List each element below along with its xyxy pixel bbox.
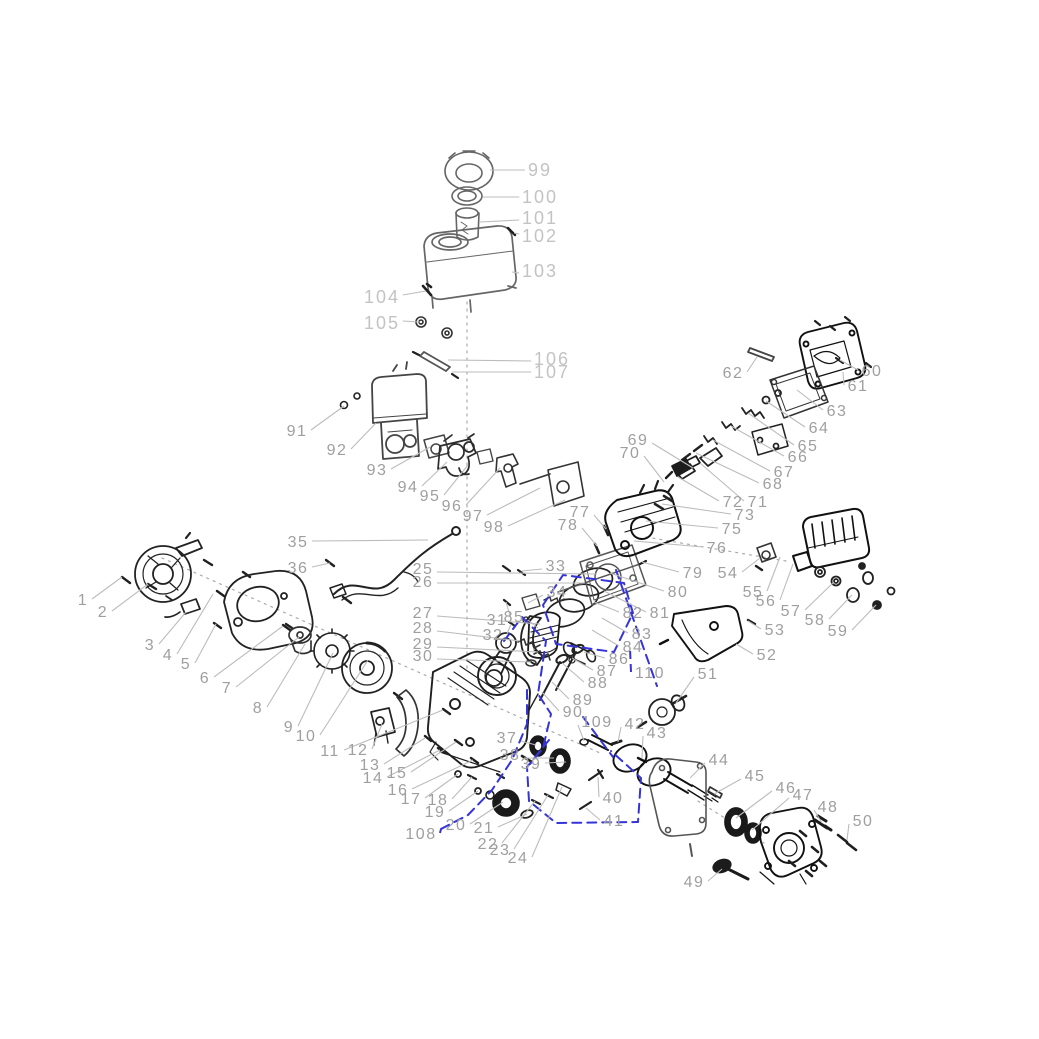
leader-line-103 — [512, 272, 519, 273]
callout-label-3: 3 — [145, 638, 155, 654]
callout-label-33: 33 — [546, 559, 567, 575]
leader-line-72 — [678, 477, 719, 501]
leader-line-43 — [642, 736, 643, 758]
callout-label-11: 11 — [320, 744, 340, 760]
leader-line-70 — [644, 456, 664, 482]
callout-label-96: 96 — [442, 499, 463, 515]
leader-line-4 — [177, 594, 213, 654]
leader-line-76 — [634, 541, 703, 547]
leader-line-35 — [312, 540, 428, 541]
leader-line-104 — [403, 291, 426, 295]
leader-line-33 — [522, 569, 542, 571]
callout-label-20: 20 — [446, 818, 467, 834]
callout-label-17: 17 — [401, 792, 422, 808]
callout-label-43: 43 — [647, 726, 668, 742]
callout-label-40: 40 — [603, 791, 624, 807]
leader-line-46 — [736, 791, 772, 818]
callout-label-95: 95 — [420, 489, 441, 505]
leader-line-52 — [736, 644, 753, 654]
leader-line-34 — [528, 595, 543, 603]
leader-line-87 — [572, 658, 593, 670]
leader-line-75 — [646, 521, 718, 528]
leader-line-47 — [752, 798, 789, 830]
leader-line-97 — [487, 488, 540, 515]
callout-label-102: 102 — [522, 227, 558, 245]
leader-line-13 — [384, 738, 425, 764]
callout-label-45: 45 — [745, 769, 766, 785]
callout-label-1: 1 — [78, 593, 88, 609]
leader-line-42 — [618, 727, 621, 742]
callout-label-110: 110 — [635, 666, 665, 682]
leader-line-88 — [562, 663, 584, 682]
leader-line-49 — [708, 869, 722, 881]
leader-line-60 — [840, 360, 858, 370]
leader-lines-layer — [0, 0, 1039, 1039]
leader-line-29 — [437, 647, 538, 652]
leader-line-89 — [552, 682, 569, 699]
callout-label-80: 80 — [668, 585, 689, 601]
callout-label-94: 94 — [398, 480, 419, 496]
callout-label-49: 49 — [684, 875, 705, 891]
leader-line-66 — [731, 426, 784, 456]
callout-label-81: 81 — [650, 606, 671, 622]
callout-label-41: 41 — [604, 814, 625, 830]
leader-line-55 — [767, 557, 780, 591]
leader-line-106 — [448, 360, 531, 361]
leader-line-94 — [422, 462, 447, 486]
leader-line-45 — [714, 779, 741, 794]
callout-label-5: 5 — [181, 657, 191, 673]
callout-label-64: 64 — [809, 421, 830, 437]
callout-label-24: 24 — [508, 851, 529, 867]
callout-label-56: 56 — [756, 594, 777, 610]
callout-label-50: 50 — [853, 814, 874, 830]
callout-label-4: 4 — [163, 648, 173, 664]
callout-label-59: 59 — [828, 624, 849, 640]
callout-label-88: 88 — [588, 676, 609, 692]
leader-line-95 — [444, 465, 468, 495]
leader-line-1 — [92, 577, 122, 599]
leader-line-9 — [298, 653, 333, 726]
callout-label-75: 75 — [722, 522, 743, 538]
leader-line-80 — [610, 573, 664, 591]
leader-line-39 — [545, 762, 566, 763]
leader-line-41 — [586, 808, 600, 820]
leader-line-5 — [195, 624, 216, 663]
leader-line-56 — [780, 564, 793, 600]
leader-line-92 — [351, 423, 376, 449]
leader-line-62 — [747, 357, 757, 372]
leader-line-63 — [797, 390, 823, 410]
leader-line-12 — [372, 724, 382, 749]
leader-line-65 — [748, 413, 794, 445]
leader-line-58 — [829, 595, 852, 619]
callout-label-35: 35 — [288, 535, 309, 551]
leader-line-67 — [713, 440, 770, 471]
callout-label-37: 37 — [497, 731, 518, 747]
callout-label-105: 105 — [364, 314, 400, 332]
callout-label-79: 79 — [683, 566, 704, 582]
leader-line-6 — [214, 626, 283, 677]
callout-label-15: 15 — [387, 766, 408, 782]
leader-line-86 — [584, 652, 605, 658]
callout-label-36: 36 — [288, 561, 309, 577]
leader-line-82 — [594, 602, 619, 612]
leader-line-22 — [502, 801, 535, 843]
callout-label-91: 91 — [287, 424, 308, 440]
callout-label-9: 9 — [284, 720, 294, 736]
callout-label-26: 26 — [413, 575, 434, 591]
callout-label-97: 97 — [463, 509, 484, 525]
callout-label-8: 8 — [253, 701, 263, 717]
leader-line-84 — [592, 630, 619, 646]
leader-line-10 — [320, 660, 368, 735]
callout-label-78: 78 — [558, 518, 579, 534]
callout-label-108: 108 — [405, 827, 436, 843]
callout-label-19: 19 — [425, 805, 446, 821]
leader-line-77 — [594, 515, 606, 529]
leader-line-93 — [391, 447, 430, 469]
callout-label-76: 76 — [707, 541, 728, 557]
callout-label-92: 92 — [327, 443, 348, 459]
callout-label-44: 44 — [709, 753, 730, 769]
callout-label-101: 101 — [522, 209, 558, 227]
leader-line-90 — [542, 692, 559, 711]
leader-line-73 — [662, 504, 731, 514]
callout-label-107: 107 — [534, 363, 570, 381]
callout-label-70: 70 — [620, 446, 641, 462]
leader-line-54 — [742, 558, 760, 572]
callout-label-85: 85 — [504, 610, 525, 626]
leader-line-79 — [642, 562, 679, 572]
leader-line-19 — [449, 791, 478, 811]
callout-label-39: 39 — [521, 757, 542, 773]
callout-label-54: 54 — [718, 566, 739, 582]
callout-label-2: 2 — [98, 605, 108, 621]
callout-label-90: 90 — [563, 705, 584, 721]
callout-label-104: 104 — [364, 288, 400, 306]
callout-label-52: 52 — [757, 648, 778, 664]
leader-line-18 — [452, 777, 472, 799]
leader-line-61 — [843, 372, 844, 385]
callout-label-99: 99 — [528, 161, 552, 179]
leader-line-30 — [437, 659, 531, 662]
leader-line-64 — [766, 401, 805, 427]
leader-line-105 — [403, 321, 420, 322]
callout-label-32: 32 — [483, 628, 504, 644]
callout-label-100: 100 — [522, 188, 558, 206]
leader-line-40 — [598, 777, 599, 797]
callout-label-14: 14 — [363, 771, 384, 787]
leader-line-50 — [847, 824, 849, 840]
leader-line-3 — [159, 612, 186, 644]
leader-line-51 — [676, 677, 694, 703]
callout-label-61: 61 — [848, 379, 869, 395]
callout-label-51: 51 — [698, 667, 719, 683]
callout-label-68: 68 — [763, 477, 784, 493]
leader-line-57 — [805, 582, 834, 610]
callout-label-93: 93 — [367, 463, 388, 479]
callout-label-53: 53 — [765, 623, 786, 639]
callout-label-109: 109 — [581, 715, 612, 731]
leader-line-98 — [508, 500, 565, 526]
callout-label-47: 47 — [793, 788, 814, 804]
callout-label-6: 6 — [200, 671, 210, 687]
leader-line-37 — [521, 741, 536, 745]
leader-line-108 — [440, 829, 441, 833]
callout-label-57: 57 — [781, 604, 802, 620]
callout-label-98: 98 — [484, 520, 505, 536]
callout-label-30: 30 — [413, 649, 434, 665]
leader-line-59 — [852, 605, 876, 630]
leader-line-102 — [514, 233, 519, 234]
callout-label-34: 34 — [547, 585, 568, 601]
exploded-parts-diagram: 9910010110210310410510610712345678910111… — [0, 0, 1039, 1039]
leader-line-53 — [748, 621, 761, 629]
leader-line-15 — [411, 742, 456, 772]
leader-line-101 — [480, 220, 519, 222]
callout-label-58: 58 — [805, 613, 826, 629]
leader-line-78 — [582, 528, 597, 546]
leader-line-2 — [112, 584, 148, 611]
callout-label-28: 28 — [413, 621, 434, 637]
callout-label-7: 7 — [222, 681, 232, 697]
leader-line-91 — [311, 406, 344, 430]
callout-label-42: 42 — [625, 717, 646, 733]
callout-label-63: 63 — [827, 404, 848, 420]
leader-line-36 — [312, 563, 330, 567]
leader-line-69 — [652, 443, 693, 468]
callout-label-48: 48 — [818, 800, 839, 816]
callout-label-21: 21 — [474, 821, 495, 837]
leader-line-7 — [236, 637, 299, 687]
leader-line-96 — [466, 468, 500, 505]
callout-label-38: 38 — [500, 748, 521, 764]
callout-label-62: 62 — [723, 366, 744, 382]
callout-label-103: 103 — [522, 262, 558, 280]
leader-line-44 — [690, 763, 705, 778]
leader-line-8 — [267, 644, 305, 707]
callout-label-10: 10 — [296, 729, 317, 745]
callout-label-82: 82 — [623, 606, 644, 622]
leader-line-25 — [437, 572, 597, 574]
